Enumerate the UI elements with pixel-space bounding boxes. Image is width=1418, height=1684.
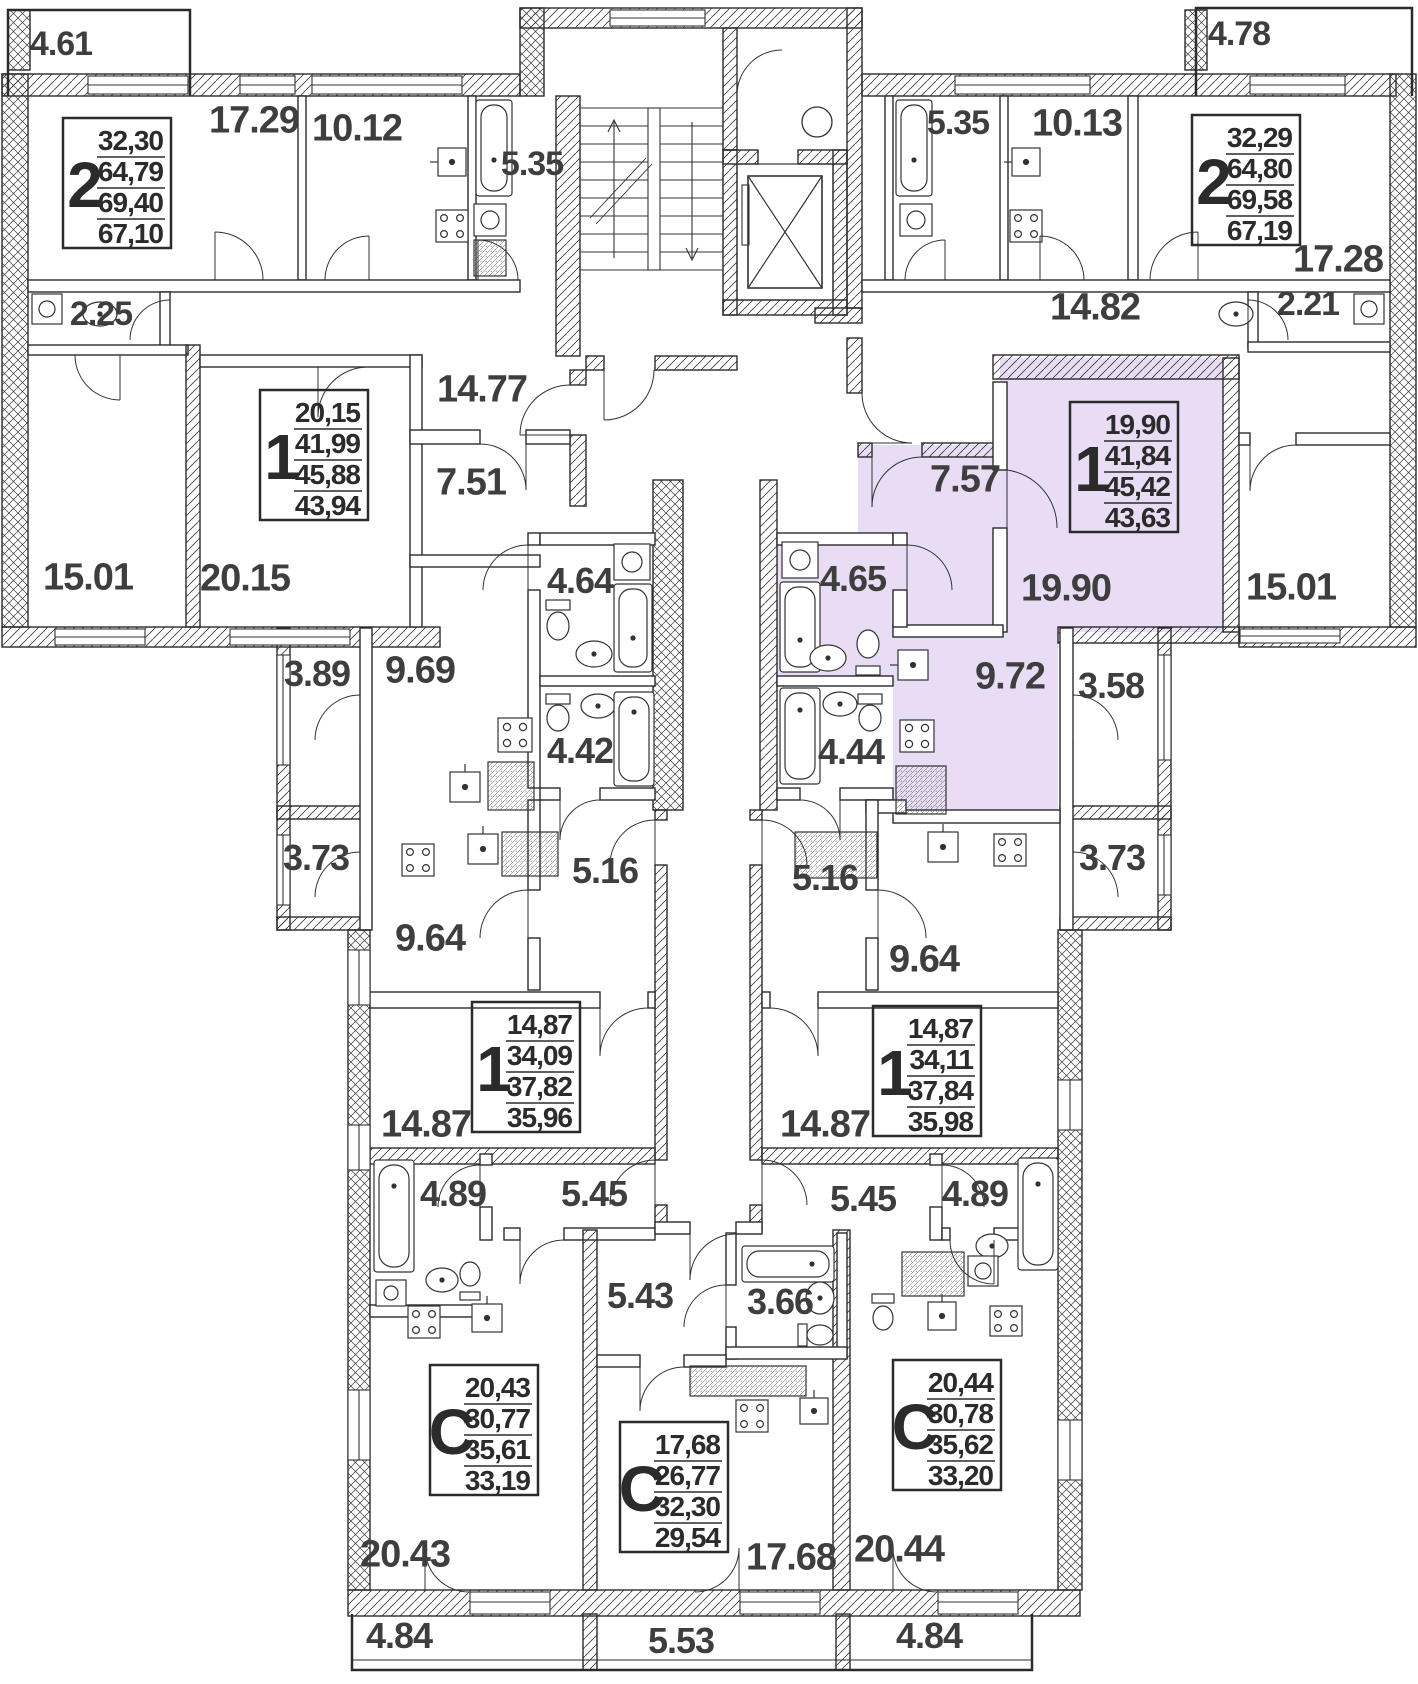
kitchen-sink (928, 1294, 956, 1330)
stove (1010, 210, 1042, 242)
room-area-label: 10.12 (312, 108, 402, 150)
apartment-area-value: 69,58 (1227, 184, 1292, 215)
apartment-area-value: 45,88 (295, 459, 360, 490)
toilet (546, 694, 570, 731)
washing-machine (782, 542, 818, 578)
room-area-label: 14.77 (437, 369, 527, 411)
room-area-label: 20.44 (854, 1529, 945, 1571)
apartment-area-value: 43,63 (1105, 502, 1170, 533)
bathtub (374, 1160, 414, 1272)
room-area-label: 3.89 (284, 653, 350, 694)
room-area-label: 19.90 (1021, 568, 1111, 610)
stove (498, 718, 532, 752)
room-area-label: 7.57 (930, 459, 1000, 501)
apartment-area-value: 35,96 (507, 1102, 572, 1133)
counter (488, 762, 534, 810)
sink (576, 641, 612, 667)
apartment-info-box-apt-1-mid-left[interactable]: 120,1541,9945,8843,94 (260, 390, 368, 521)
room-area-label: 4.44 (818, 731, 885, 772)
room-area-labels-layer: 4.6117.2910.125.355.3510.134.7817.282.25… (30, 15, 1383, 1661)
fixtures-layer (32, 100, 1384, 1432)
staircase (580, 108, 723, 270)
stove (736, 1400, 768, 1432)
room-area-label: 20.15 (200, 558, 291, 600)
room-area-label: 17.29 (209, 100, 299, 142)
stove (436, 210, 468, 242)
apartment-area-value: 14,87 (507, 1009, 572, 1040)
room-area-label: 3.66 (747, 1281, 813, 1322)
room-area-label: 5.35 (927, 104, 989, 142)
apartment-area-value: 64,80 (1227, 153, 1292, 184)
sink (823, 692, 857, 716)
room-area-label: 17.68 (746, 1537, 836, 1579)
counter (902, 1252, 964, 1296)
washing-machine (614, 544, 650, 580)
counter (474, 240, 506, 276)
room-area-label: 4.42 (547, 730, 613, 771)
apartment-info-box-apt-2-top-right[interactable]: 232,2964,8069,5867,19 (1192, 115, 1300, 246)
washing-machine (900, 204, 932, 236)
room-area-label: 7.51 (436, 462, 507, 504)
apartment-area-value: 37,82 (507, 1071, 572, 1102)
toilet (856, 630, 880, 675)
stove (990, 1306, 1022, 1336)
apartment-area-value: 35,61 (465, 1434, 530, 1465)
room-area-label: 14.87 (381, 1104, 471, 1146)
stair-break-line (590, 158, 652, 224)
sink (810, 645, 846, 671)
room-area-label: 20.43 (360, 1534, 450, 1576)
room-area-label: 4.89 (420, 1173, 486, 1214)
apartment-area-value: 67,19 (1227, 215, 1292, 246)
room-area-label: 14.87 (780, 1104, 870, 1146)
apartment-area-value: 26,77 (655, 1460, 720, 1491)
apartment-area-value: 64,79 (98, 156, 163, 187)
room-area-label: 5.35 (501, 145, 563, 183)
apartment-area-value: 32,30 (98, 125, 163, 156)
walls-layer (2, 8, 1416, 1670)
counter (502, 832, 558, 876)
apartment-info-box-studio-left[interactable]: С20,4330,7735,6133,19 (429, 1365, 538, 1496)
kitchen-sink (472, 1296, 502, 1332)
room-area-label: 5.43 (607, 1275, 673, 1316)
elevator (737, 107, 833, 300)
apartment-area-value: 29,54 (655, 1522, 721, 1553)
apartment-area-value: 32,30 (655, 1491, 720, 1522)
apartment-info-boxes-layer: 232,3064,7969,4067,10232,2964,8069,5867,… (63, 115, 1300, 1553)
room-area-label: 5.16 (792, 857, 858, 898)
sink (426, 1268, 458, 1292)
elevator-x-mark (748, 176, 822, 288)
room-area-label: 5.53 (648, 1620, 714, 1661)
room-area-label: 15.01 (1246, 567, 1337, 609)
apartment-area-value: 33,19 (465, 1465, 530, 1496)
apartment-area-value: 35,62 (928, 1429, 993, 1460)
bathtub (742, 1246, 834, 1282)
kitchen-sink (1004, 148, 1040, 176)
room-area-label: 4.89 (942, 1173, 1008, 1214)
chute-circle (802, 107, 832, 137)
stove (402, 844, 434, 876)
kitchen-sink (928, 824, 958, 862)
room-area-label: 4.65 (820, 558, 887, 599)
bathtub (614, 692, 654, 786)
kitchen-sink (468, 826, 498, 864)
apartment-area-value: 20,15 (295, 397, 360, 428)
room-area-label: 15.01 (43, 557, 134, 599)
bathtub (780, 688, 820, 784)
apartment-area-value: 45,42 (1105, 471, 1170, 502)
room-area-label: 4.64 (547, 560, 614, 601)
apartment-area-value: 30,78 (928, 1398, 993, 1429)
toilet (858, 694, 882, 731)
room-area-label: 17.28 (1293, 239, 1383, 281)
apartment-area-value: 33,20 (928, 1460, 993, 1491)
bathtub (614, 584, 652, 672)
apartment-area-value: 19,90 (1105, 409, 1170, 440)
washing-machine (32, 294, 62, 324)
room-area-label: 3.73 (283, 837, 349, 878)
room-area-label: 2.25 (70, 295, 132, 333)
apartment-area-value: 41,84 (1105, 440, 1171, 471)
room-area-label: 14.82 (1050, 287, 1140, 329)
kitchen-sink (430, 148, 466, 176)
floor-plan-page: 4.6117.2910.125.355.3510.134.7817.282.25… (0, 0, 1418, 1684)
room-area-label: 5.45 (561, 1173, 628, 1214)
room-area-label: 2.21 (1277, 285, 1339, 323)
washing-machine (474, 204, 506, 236)
toilet (460, 1262, 480, 1300)
apartment-area-value: 67,10 (98, 218, 163, 249)
washing-machine (1354, 294, 1384, 324)
room-area-label: 3.58 (1078, 665, 1144, 706)
kitchen-sink (450, 764, 480, 802)
apartment-area-value: 35,98 (908, 1106, 973, 1137)
stove (900, 720, 934, 752)
sink (976, 1234, 1008, 1258)
room-area-label: 9.64 (395, 918, 466, 960)
room-area-label: 5.45 (830, 1178, 897, 1219)
apartment-area-value: 69,40 (98, 187, 163, 218)
apartment-area-value: 20,44 (928, 1367, 994, 1398)
room-area-label: 4.84 (896, 1615, 963, 1656)
room-area-label: 10.13 (1032, 103, 1122, 145)
apartment-info-box-apt-2-top-left[interactable]: 232,3064,7969,4067,10 (63, 118, 171, 249)
room-area-label: 5.16 (572, 850, 638, 891)
apartment-area-value: 30,77 (465, 1403, 530, 1434)
room-area-label: 9.72 (975, 656, 1045, 698)
apartment-info-box-studio-middle[interactable]: С17,6826,7732,3029,54 (619, 1422, 728, 1553)
apartment-info-box-studio-right[interactable]: С20,4430,7835,6233,20 (892, 1360, 1001, 1491)
apartment-info-box-apt-1-lower-left[interactable]: 114,8734,0937,8235,96 (472, 1002, 580, 1133)
room-area-label: 3.73 (1079, 837, 1145, 878)
apartment-area-value: 37,84 (908, 1075, 974, 1106)
toilet (872, 1294, 894, 1330)
room-area-label: 4.61 (30, 25, 92, 63)
counter (896, 766, 946, 814)
room-area-label: 9.69 (385, 650, 455, 692)
room-area-label: 4.84 (366, 1615, 433, 1656)
room-area-label: 9.64 (889, 939, 960, 981)
washing-machine (376, 1280, 406, 1306)
floor-plan-svg: 4.6117.2910.125.355.3510.134.7817.282.25… (0, 0, 1418, 1684)
apartment-area-value: 34,11 (909, 1044, 973, 1075)
apartment-area-value: 34,09 (507, 1040, 572, 1071)
apartment-area-value: 17,68 (655, 1429, 720, 1460)
apartment-area-value: 32,29 (1227, 122, 1292, 153)
apartment-area-value: 41,99 (295, 428, 360, 459)
sink (581, 694, 615, 718)
apartment-info-box-apt-1-lower-right[interactable]: 114,8734,1137,8435,98 (873, 1006, 981, 1137)
apartment-area-value: 20,43 (465, 1372, 530, 1403)
apartment-area-value: 14,87 (908, 1013, 973, 1044)
stove (994, 834, 1026, 866)
counter (690, 1366, 806, 1396)
toilet (546, 600, 570, 640)
bathtub (1018, 1158, 1058, 1270)
stove (408, 1306, 440, 1338)
toilet (798, 1324, 833, 1346)
apartment-area-value: 43,94 (295, 490, 361, 521)
room-area-label: 4.78 (1208, 15, 1270, 53)
